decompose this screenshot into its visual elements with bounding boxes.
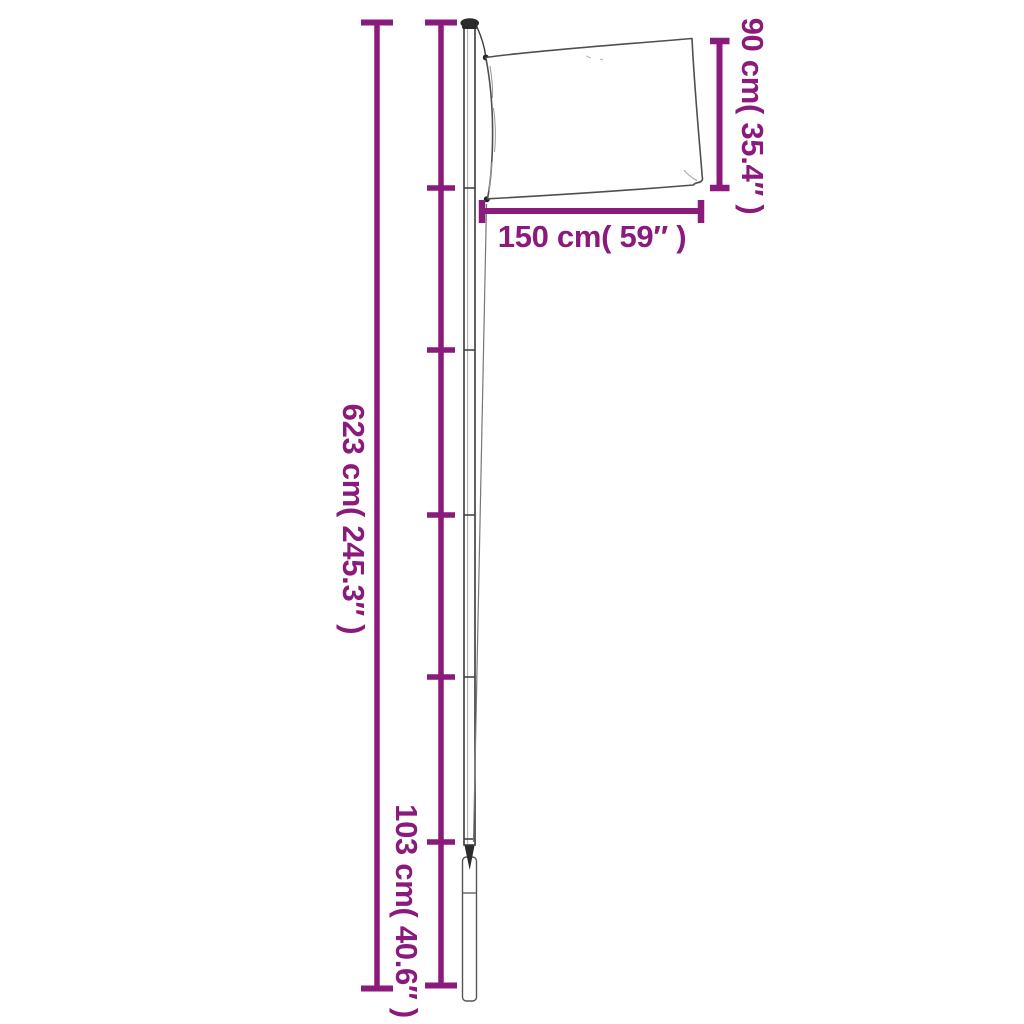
total-height-label: 623 cm( 245.3″ ) [335,404,371,635]
flag [486,39,703,199]
flag-height-label: 90 cm( 35.4″ ) [734,18,770,215]
pole-body [464,27,475,845]
flag-height-dimension-line [710,40,730,189]
flag-outline [486,39,703,199]
section-height-label: 103 cm( 40.6″ ) [388,804,424,1018]
flag-width-label: 150 cm( 59″ ) [498,219,686,255]
section-dimension-line [425,22,457,986]
diagram-canvas [0,0,1024,1024]
flagpole [460,18,489,1001]
ground-sleeve [463,857,477,1001]
pole-finial-top [460,18,479,28]
product-dimension-diagram: 623 cm( 245.3″ ) 103 cm( 40.6″ ) 150 cm(… [0,0,1024,1024]
halyard-rope-top [477,27,486,56]
